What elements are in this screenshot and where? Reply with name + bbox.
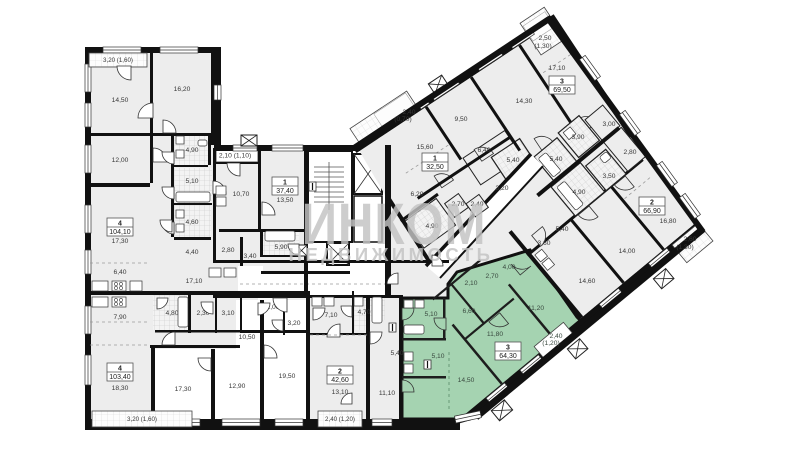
svg-text:6,60: 6,60	[462, 308, 475, 315]
svg-text:2,10 (1,10): 2,10 (1,10)	[219, 153, 251, 160]
svg-text:3,20: 3,20	[495, 185, 508, 192]
svg-text:3: 3	[506, 345, 510, 352]
svg-text:2,60: 2,60	[683, 236, 696, 243]
svg-text:3,00: 3,00	[602, 121, 615, 128]
svg-text:3,10: 3,10	[221, 310, 234, 317]
svg-text:1: 1	[433, 156, 437, 163]
svg-text:5,40: 5,40	[506, 157, 519, 164]
svg-text:3,90: 3,90	[571, 134, 584, 141]
svg-text:2: 2	[650, 200, 654, 207]
svg-text:5,40: 5,40	[555, 226, 568, 233]
svg-text:4: 4	[118, 366, 122, 373]
svg-text:14,00: 14,00	[619, 248, 636, 255]
svg-text:5,10: 5,10	[431, 353, 444, 360]
svg-text:5,40: 5,40	[390, 350, 403, 357]
svg-text:3,40: 3,40	[243, 253, 256, 260]
svg-text:10,70: 10,70	[233, 191, 250, 198]
svg-text:7,10: 7,10	[324, 312, 337, 319]
svg-text:2,40: 2,40	[402, 109, 415, 116]
svg-text:3: 3	[560, 79, 564, 86]
svg-text:17,30: 17,30	[112, 238, 129, 245]
svg-text:15,60: 15,60	[417, 144, 434, 151]
svg-text:5,90: 5,90	[274, 244, 287, 251]
svg-text:(1,30): (1,30)	[676, 244, 693, 251]
svg-text:6,40: 6,40	[477, 147, 490, 154]
svg-text:1: 1	[283, 180, 287, 187]
svg-text:6,40: 6,40	[113, 269, 126, 276]
svg-text:16,80: 16,80	[660, 218, 677, 225]
svg-text:(1,30): (1,30)	[534, 43, 551, 50]
svg-text:3,60: 3,60	[537, 240, 550, 247]
svg-text:НЕДВИЖИМОСТЬ: НЕДВИЖИМОСТЬ	[289, 244, 494, 265]
svg-text:4,70: 4,70	[357, 309, 370, 316]
svg-text:14,50: 14,50	[458, 377, 475, 384]
svg-text:9,50: 9,50	[454, 116, 467, 123]
svg-text:3,20 (1,60): 3,20 (1,60)	[127, 416, 157, 423]
svg-text:16,20: 16,20	[174, 86, 191, 93]
svg-text:17,10: 17,10	[549, 65, 566, 72]
svg-text:4,90: 4,90	[572, 189, 585, 196]
svg-text:18,30: 18,30	[112, 385, 129, 392]
svg-text:11,80: 11,80	[487, 331, 504, 338]
svg-text:17,30: 17,30	[175, 386, 192, 393]
svg-text:103,40: 103,40	[109, 374, 131, 381]
svg-text:11,10: 11,10	[379, 390, 396, 397]
svg-text:2,40 (1,20): 2,40 (1,20)	[325, 416, 355, 423]
svg-text:14,30: 14,30	[516, 98, 533, 105]
svg-text:3,50: 3,50	[602, 173, 615, 180]
svg-text:2,70: 2,70	[485, 273, 498, 280]
svg-text:14,60: 14,60	[579, 278, 596, 285]
svg-text:2,50: 2,50	[538, 35, 551, 42]
svg-text:104,10: 104,10	[109, 229, 131, 236]
svg-text:42,60: 42,60	[331, 377, 349, 384]
svg-text:(0,70): (0,70)	[394, 116, 411, 123]
svg-text:66,90: 66,90	[643, 208, 661, 215]
svg-text:12,00: 12,00	[112, 157, 129, 164]
svg-text:37,40: 37,40	[276, 188, 294, 195]
svg-text:4,80: 4,80	[165, 310, 178, 317]
svg-text:4,00: 4,00	[502, 264, 515, 271]
svg-text:7,90: 7,90	[113, 314, 126, 321]
svg-text:4,90: 4,90	[185, 147, 198, 154]
svg-text:2,80: 2,80	[623, 149, 636, 156]
svg-text:2,80: 2,80	[221, 247, 234, 254]
svg-text:2,40: 2,40	[549, 333, 562, 340]
svg-text:19,50: 19,50	[279, 373, 296, 380]
svg-text:10,50: 10,50	[239, 334, 256, 341]
svg-text:3,20: 3,20	[287, 320, 300, 327]
svg-text:2: 2	[338, 369, 342, 376]
svg-text:32,50: 32,50	[426, 164, 444, 171]
svg-text:14,50: 14,50	[112, 97, 129, 104]
svg-text:13,50: 13,50	[277, 197, 294, 204]
svg-text:5,40: 5,40	[549, 156, 562, 163]
svg-text:4,60: 4,60	[185, 219, 198, 226]
svg-text:11,20: 11,20	[528, 305, 545, 312]
svg-text:2,10: 2,10	[464, 280, 477, 287]
svg-text:12,90: 12,90	[229, 383, 246, 390]
svg-text:69,50: 69,50	[553, 87, 571, 94]
svg-text:5,10: 5,10	[185, 178, 198, 185]
svg-text:17,10: 17,10	[186, 278, 203, 285]
svg-text:64,30: 64,30	[499, 353, 517, 360]
svg-text:4: 4	[118, 221, 122, 228]
svg-text:3,20 (1,60): 3,20 (1,60)	[103, 57, 133, 64]
svg-text:4,40: 4,40	[185, 249, 198, 256]
svg-text:5,10: 5,10	[424, 311, 437, 318]
svg-text:(1,20): (1,20)	[542, 340, 559, 347]
